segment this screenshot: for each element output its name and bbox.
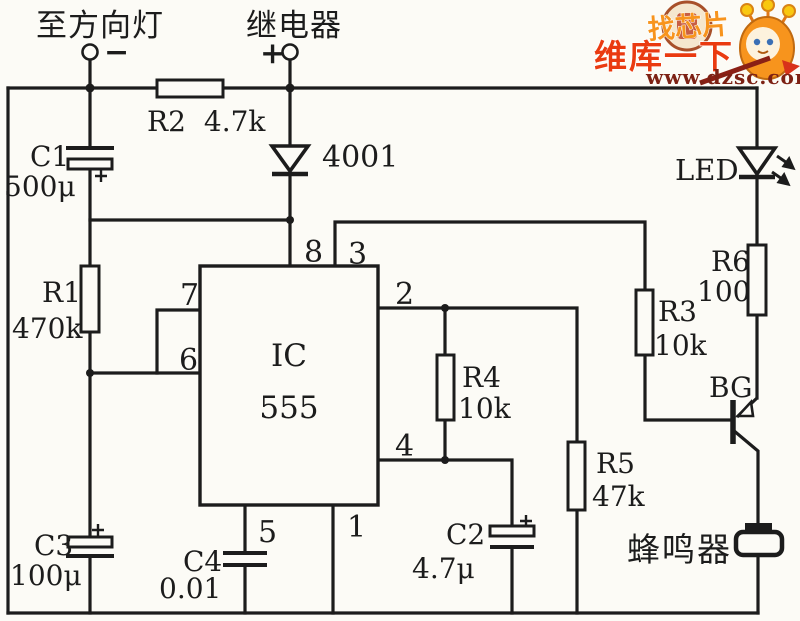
resistor-ref: R1	[42, 276, 81, 309]
resistor-body	[636, 290, 653, 355]
watermark-url: www.dzsc.com	[645, 65, 800, 89]
transistor-collector	[733, 430, 758, 526]
buzzer-label: 蜂鸣器	[627, 530, 732, 569]
led-light-arrows	[772, 156, 793, 184]
mascot-antenna-ball	[741, 4, 753, 16]
mascot-face	[746, 27, 780, 61]
resistor-value: 10k	[654, 329, 708, 362]
resistor-r1: R1 470k	[12, 266, 99, 345]
ic-pin-label: 8	[304, 235, 323, 270]
plus-mark	[92, 524, 104, 536]
ic-name: IC	[271, 338, 307, 374]
schematic-page: 至方向灯 − 继电器 + IC 555 8 3 7 6 2 4 5 1 R24.…	[0, 0, 800, 621]
transistor-bg: BG	[709, 371, 758, 526]
junction-dot	[86, 369, 94, 377]
capacitor-c1: C1 500μ	[4, 140, 114, 203]
ic-555: IC 555 8 3 7 6 2 4 5 1	[179, 235, 414, 550]
junction-dot	[86, 84, 95, 93]
ic-pin-label: 2	[395, 277, 414, 312]
capacitor-plate-positive	[68, 159, 112, 169]
capacitor-plate-positive	[68, 537, 112, 547]
transistor-emitter-arrow	[738, 402, 753, 416]
resistor-ref: R6	[711, 245, 750, 278]
capacitor-value: 4.7μ	[412, 552, 475, 585]
terminal-label: 至方向灯	[36, 8, 164, 44]
led-label: LED	[675, 153, 739, 187]
resistor-ref: R2	[147, 105, 186, 138]
resistor-label: R24.7k	[147, 105, 266, 138]
buzzer-body	[736, 532, 782, 555]
terminal-relay: 继电器 +	[246, 8, 342, 71]
resistor-value: 10k	[458, 392, 512, 425]
capacitor-value: 100μ	[10, 559, 82, 592]
terminal-circle	[83, 45, 98, 60]
resistor-body	[437, 355, 454, 420]
junction-dot	[286, 216, 294, 224]
plus-mark	[95, 170, 107, 182]
circuit-schematic: 至方向灯 − 继电器 + IC 555 8 3 7 6 2 4 5 1 R24.…	[0, 0, 800, 621]
resistor-r4: R4 10k	[437, 355, 512, 425]
resistor-ref: R3	[658, 295, 697, 328]
capacitor-ref: C1	[30, 140, 69, 173]
led: LED	[675, 148, 793, 187]
terminal-polarity: +	[260, 36, 285, 71]
capacitor-value: 500μ	[4, 170, 76, 203]
resistor-ref: R5	[596, 447, 635, 480]
capacitor-ref: C2	[446, 518, 485, 551]
capacitor-plate-positive	[490, 526, 534, 536]
ic-pin-label: 7	[180, 278, 199, 313]
resistor-body	[157, 80, 223, 97]
resistor-r5: R5 47k	[568, 442, 646, 513]
mascot-eye	[767, 39, 773, 45]
capacitor-c2: C2 4.7μ	[412, 515, 534, 585]
ic-body	[200, 266, 378, 505]
junction-dot	[441, 304, 449, 312]
transistor-label: BG	[709, 371, 752, 404]
capacitor-c4: C4 0.01	[159, 545, 267, 605]
resistor-body	[81, 266, 99, 332]
ic-model: 555	[259, 390, 318, 426]
resistor-value: 470k	[12, 312, 83, 345]
resistor-value: 4.7k	[204, 105, 267, 138]
watermark-logo: 找芯片 维库一下 www.dzsc.com	[594, 0, 800, 89]
capacitor-ref: C3	[34, 529, 73, 562]
resistor-body	[748, 245, 766, 315]
diode-value: 4001	[322, 140, 398, 175]
resistor-body	[568, 442, 585, 510]
resistor-r6: R6 100	[697, 245, 766, 315]
ic-pin-label: 5	[258, 515, 277, 550]
resistor-ref: R4	[462, 361, 501, 394]
capacitor-c3: C3 100μ	[10, 524, 114, 592]
mascot-antenna-ball	[762, 0, 774, 11]
mascot-eye	[754, 39, 760, 45]
resistor-value: 100	[697, 275, 750, 308]
diode-triangle	[272, 146, 308, 171]
junction-dot	[441, 456, 449, 464]
terminal-polarity: −	[104, 35, 129, 70]
ic-pin-label: 4	[395, 429, 414, 464]
led-triangle	[739, 148, 775, 174]
wire	[335, 222, 645, 290]
mascot-antenna-ball	[783, 5, 795, 17]
capacitor-value: 0.01	[159, 572, 221, 605]
resistor-value: 47k	[592, 480, 646, 513]
diode-4001: 4001	[272, 140, 398, 175]
ic-pin-label: 6	[179, 343, 198, 378]
ic-pin-label: 3	[348, 237, 367, 272]
ic-pin-label: 1	[347, 510, 366, 545]
terminal-direction-lamp: 至方向灯 −	[36, 8, 164, 70]
wire	[378, 460, 512, 526]
junction-dot	[286, 84, 295, 93]
